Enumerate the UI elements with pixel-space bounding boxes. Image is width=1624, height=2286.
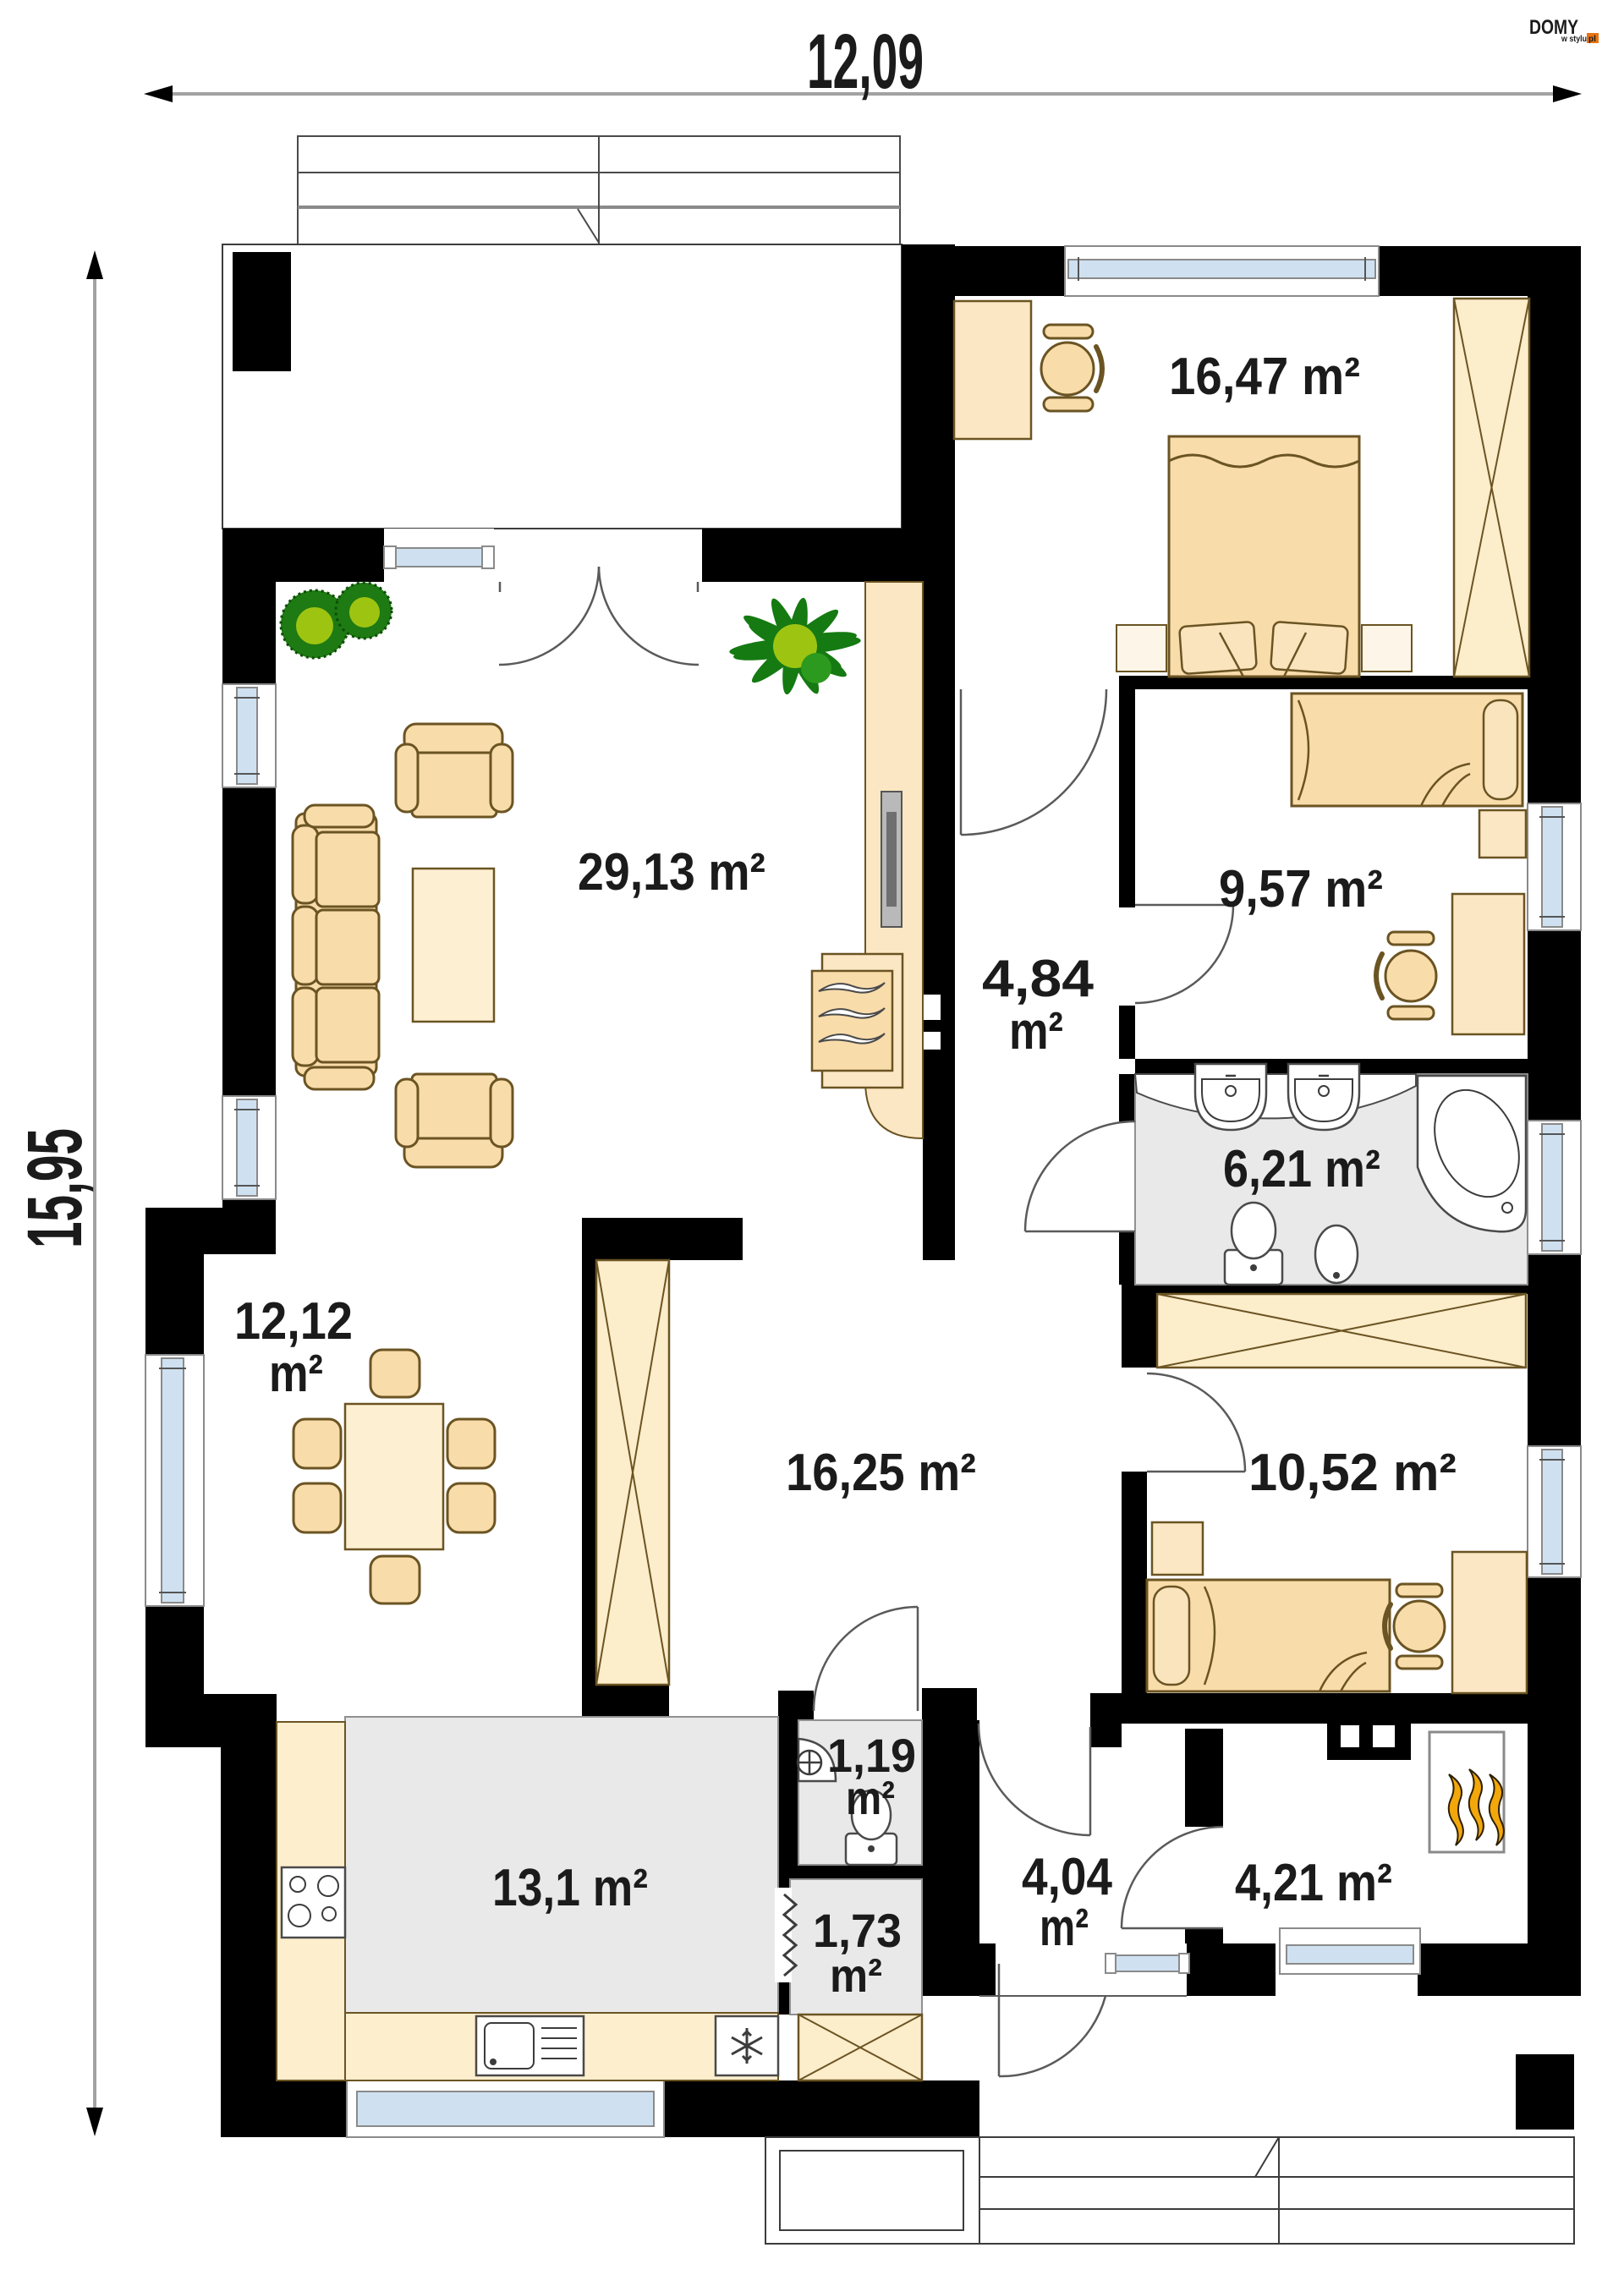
svg-text:6,21 m²: 6,21 m² bbox=[1223, 1140, 1380, 1198]
svg-text:15,95: 15,95 bbox=[12, 1128, 98, 1248]
svg-text:4,21 m²: 4,21 m² bbox=[1235, 1854, 1392, 1912]
svg-text:m²: m² bbox=[269, 1345, 323, 1403]
svg-text:w stylu: w stylu bbox=[1561, 35, 1587, 44]
svg-text:10,52 m²: 10,52 m² bbox=[1248, 1444, 1457, 1502]
svg-text:29,13 m²: 29,13 m² bbox=[578, 843, 765, 902]
svg-text:12,09: 12,09 bbox=[807, 19, 924, 105]
svg-text:16,25 m²: 16,25 m² bbox=[786, 1444, 976, 1502]
svg-text:12,12: 12,12 bbox=[234, 1292, 353, 1351]
svg-text:m²: m² bbox=[846, 1771, 895, 1824]
svg-text:13,1 m²: 13,1 m² bbox=[492, 1859, 648, 1917]
svg-text:4,04: 4,04 bbox=[1022, 1848, 1112, 1906]
svg-text:4,84: 4,84 bbox=[982, 950, 1095, 1008]
svg-text:9,57 m²: 9,57 m² bbox=[1219, 860, 1383, 918]
svg-text:m²: m² bbox=[1040, 1899, 1089, 1957]
svg-text:m²: m² bbox=[830, 1949, 882, 2002]
svg-text:pl: pl bbox=[1588, 35, 1596, 44]
svg-text:m²: m² bbox=[1009, 1002, 1063, 1061]
svg-text:16,47 m²: 16,47 m² bbox=[1169, 348, 1360, 406]
